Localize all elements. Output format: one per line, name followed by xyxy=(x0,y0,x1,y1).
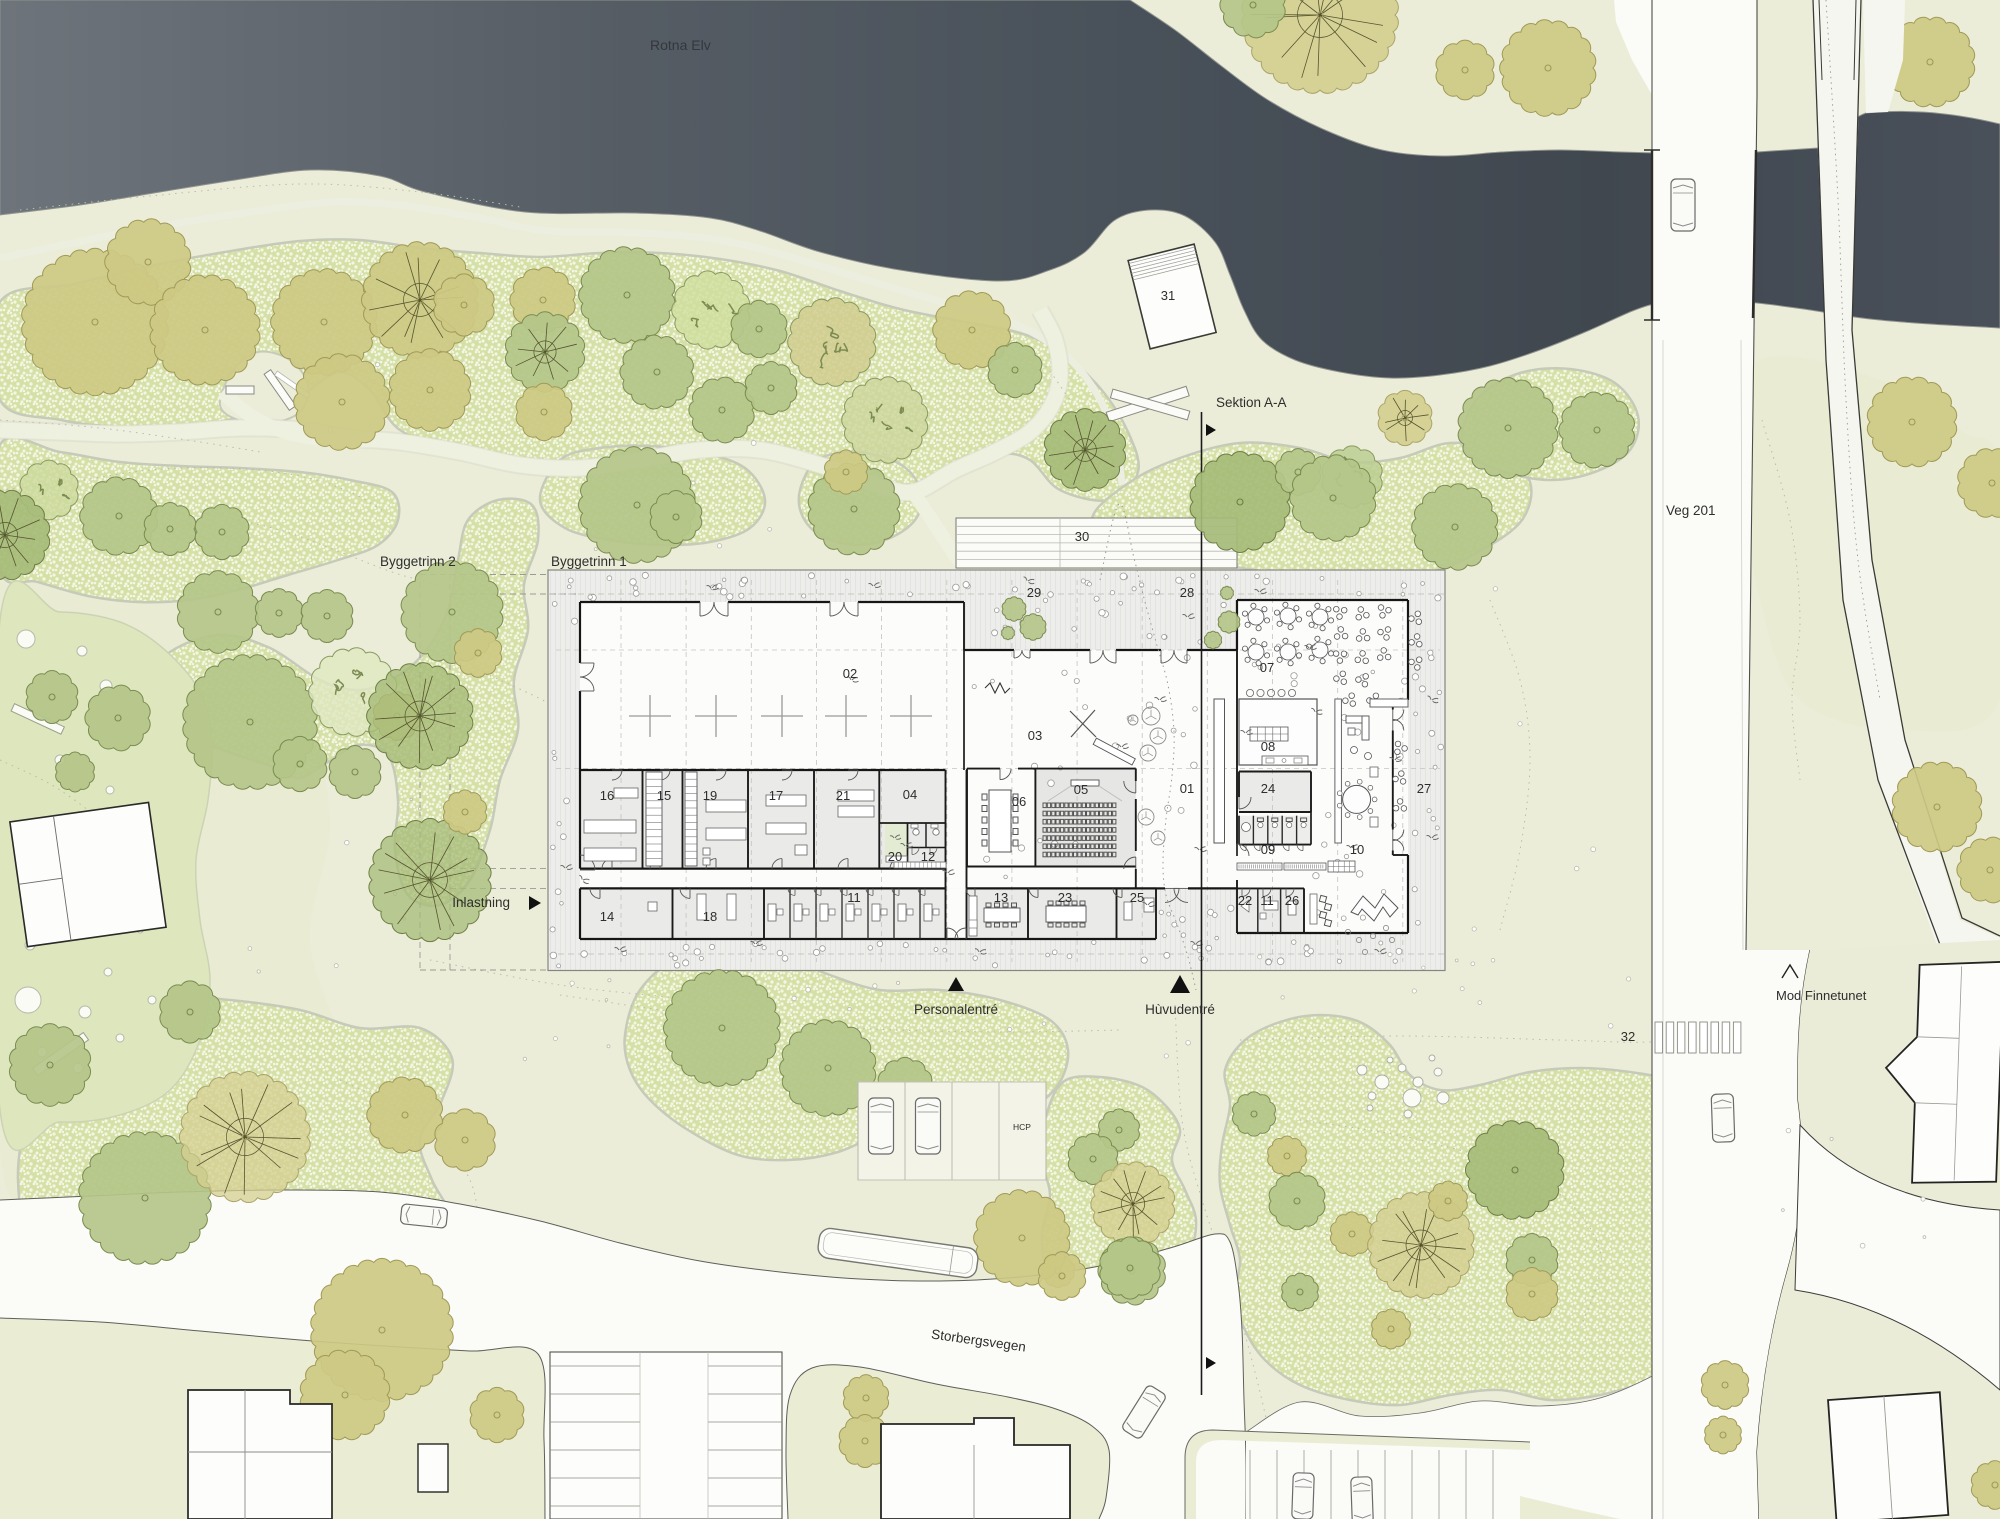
svg-text:30: 30 xyxy=(1075,529,1089,544)
svg-text:Veg 201: Veg 201 xyxy=(1666,503,1716,518)
svg-text:08: 08 xyxy=(1261,739,1275,754)
svg-text:Personalentré: Personalentré xyxy=(914,1002,998,1017)
svg-text:07: 07 xyxy=(1260,660,1274,675)
svg-text:16: 16 xyxy=(600,788,614,803)
svg-text:06: 06 xyxy=(1012,794,1026,809)
svg-text:15: 15 xyxy=(657,788,671,803)
svg-text:29: 29 xyxy=(1027,585,1041,600)
svg-text:32: 32 xyxy=(1621,1029,1635,1044)
svg-text:26: 26 xyxy=(1285,893,1299,908)
svg-text:13: 13 xyxy=(994,890,1008,905)
svg-text:25: 25 xyxy=(1130,890,1144,905)
svg-text:19: 19 xyxy=(703,788,717,803)
svg-text:09: 09 xyxy=(1261,842,1275,857)
svg-text:11: 11 xyxy=(847,890,861,905)
svg-text:20: 20 xyxy=(888,849,902,864)
svg-text:21: 21 xyxy=(836,788,850,803)
svg-text:31: 31 xyxy=(1161,288,1175,303)
svg-text:12: 12 xyxy=(921,849,935,864)
svg-text:Inlastning: Inlastning xyxy=(452,895,510,910)
svg-text:14: 14 xyxy=(600,909,614,924)
svg-text:04: 04 xyxy=(903,787,917,802)
svg-text:03: 03 xyxy=(1028,728,1042,743)
svg-text:Sektion A-A: Sektion A-A xyxy=(1216,395,1287,410)
svg-text:Byggetrinn 2: Byggetrinn 2 xyxy=(380,554,456,569)
svg-text:11: 11 xyxy=(1260,893,1274,908)
svg-text:22: 22 xyxy=(1238,893,1252,908)
svg-text:17: 17 xyxy=(769,788,783,803)
svg-text:Mod Finnetunet: Mod Finnetunet xyxy=(1776,988,1867,1003)
svg-text:18: 18 xyxy=(703,909,717,924)
svg-text:10: 10 xyxy=(1350,842,1364,857)
svg-text:23: 23 xyxy=(1058,890,1072,905)
svg-text:02: 02 xyxy=(843,666,857,681)
svg-text:27: 27 xyxy=(1417,781,1431,796)
svg-text:05: 05 xyxy=(1074,782,1088,797)
svg-text:Rotna Elv: Rotna Elv xyxy=(650,37,711,53)
svg-text:Byggetrinn 1: Byggetrinn 1 xyxy=(551,554,627,569)
svg-text:HCP: HCP xyxy=(1013,1122,1031,1132)
svg-text:Hùvudentré: Hùvudentré xyxy=(1145,1002,1215,1017)
svg-text:24: 24 xyxy=(1261,781,1275,796)
svg-text:01: 01 xyxy=(1180,781,1194,796)
svg-text:28: 28 xyxy=(1180,585,1194,600)
